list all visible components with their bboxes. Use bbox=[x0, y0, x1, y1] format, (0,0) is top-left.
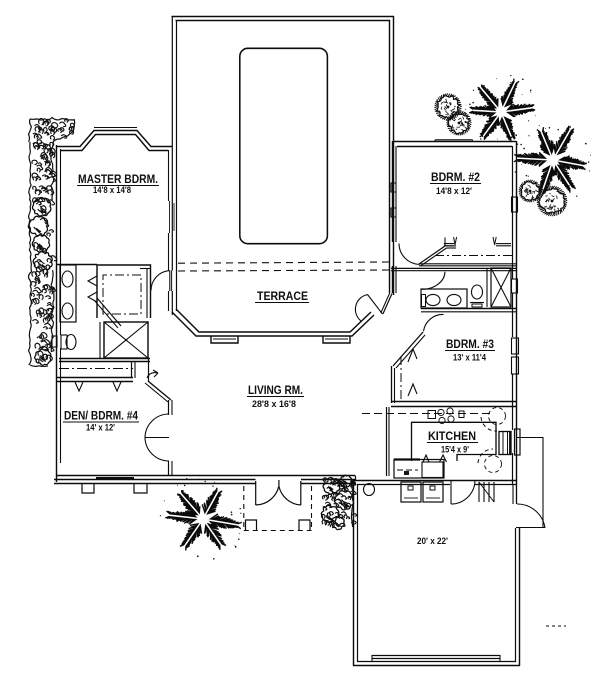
svg-text:14'8 x 12': 14'8 x 12' bbox=[436, 186, 472, 196]
svg-text:LIVING RM.: LIVING RM. bbox=[248, 385, 303, 397]
svg-text:20' x 22': 20' x 22' bbox=[417, 536, 448, 546]
svg-text:TERRACE: TERRACE bbox=[257, 291, 308, 303]
svg-text:DEN/ BDRM. #4: DEN/ BDRM. #4 bbox=[64, 411, 139, 423]
svg-text:BDRM. #2: BDRM. #2 bbox=[431, 172, 480, 184]
svg-text:15'4 x 9': 15'4 x 9' bbox=[441, 445, 469, 455]
svg-text:13' x 11'4: 13' x 11'4 bbox=[453, 353, 486, 363]
svg-text:KITCHEN: KITCHEN bbox=[428, 431, 476, 443]
svg-text:14' x 12': 14' x 12' bbox=[86, 423, 115, 433]
svg-text:BDRM. #3: BDRM. #3 bbox=[446, 339, 494, 351]
svg-text:28'8 x 16'8: 28'8 x 16'8 bbox=[252, 399, 296, 409]
svg-text:14'8 x 14'8: 14'8 x 14'8 bbox=[93, 185, 131, 195]
